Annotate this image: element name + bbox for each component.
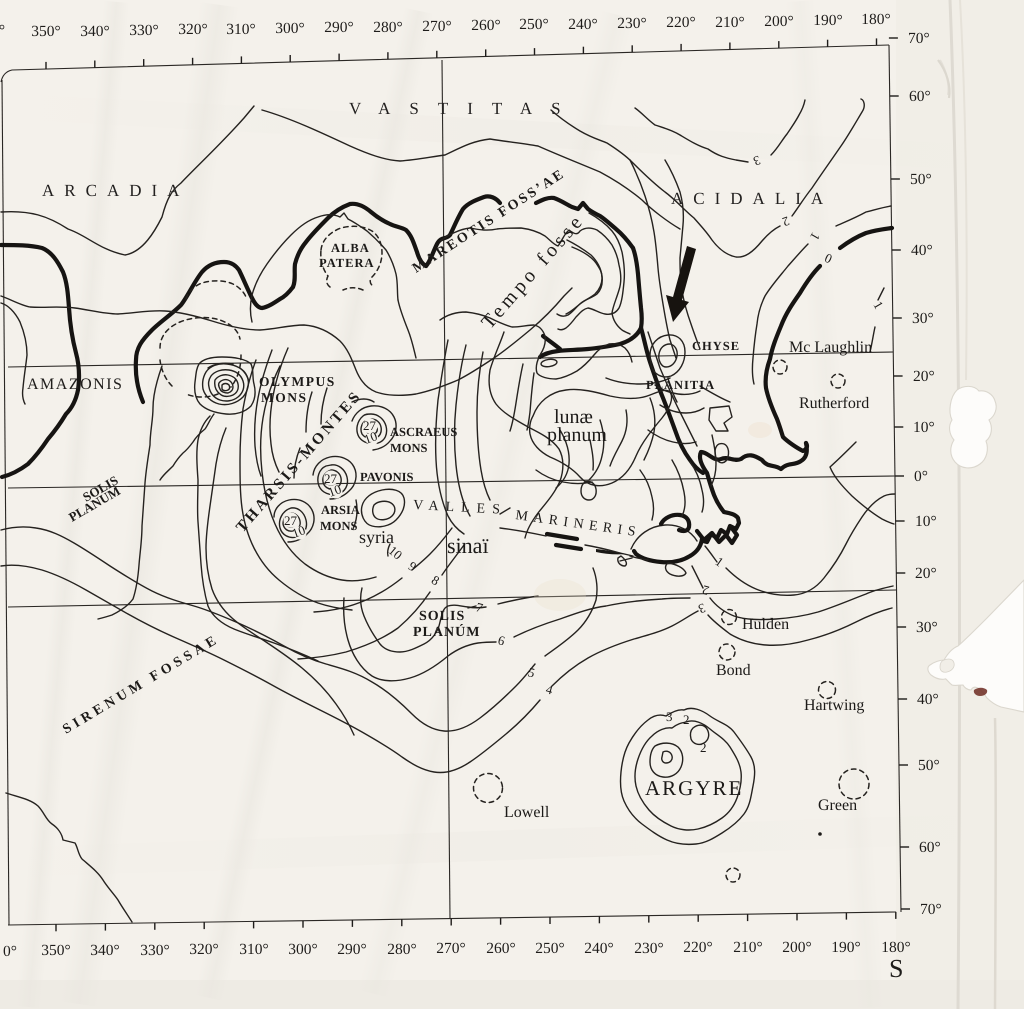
svg-text:290°: 290° xyxy=(324,19,353,36)
svg-text:330°: 330° xyxy=(129,22,158,39)
svg-text:syria: syria xyxy=(359,527,394,547)
svg-text:340°: 340° xyxy=(90,942,119,959)
svg-text:ACIDALIA: ACIDALIA xyxy=(671,189,833,208)
svg-text:340°: 340° xyxy=(80,23,109,40)
svg-text:250°: 250° xyxy=(535,940,564,957)
svg-text:50°: 50° xyxy=(910,171,932,188)
svg-text:°: ° xyxy=(0,22,5,39)
svg-text:280°: 280° xyxy=(373,19,402,36)
svg-text:330°: 330° xyxy=(140,942,169,959)
svg-text:Hulden: Hulden xyxy=(742,616,789,633)
svg-text:Green: Green xyxy=(818,797,857,814)
svg-text:280°: 280° xyxy=(387,941,416,958)
svg-text:70°: 70° xyxy=(920,901,942,918)
svg-text:180°: 180° xyxy=(861,11,890,28)
svg-text:S: S xyxy=(889,954,903,983)
svg-text:220°: 220° xyxy=(666,14,695,31)
svg-text:200°: 200° xyxy=(782,939,811,956)
svg-text:Rutherford: Rutherford xyxy=(799,395,869,412)
svg-text:planum: planum xyxy=(547,424,607,446)
svg-text:VASTITAS: VASTITAS xyxy=(349,99,580,118)
svg-text:210°: 210° xyxy=(715,14,744,31)
svg-text:300°: 300° xyxy=(288,941,317,958)
svg-text:40°: 40° xyxy=(911,242,933,259)
svg-text:260°: 260° xyxy=(471,17,500,34)
svg-text:ARCADIA: ARCADIA xyxy=(42,181,189,200)
svg-text:20°: 20° xyxy=(913,368,935,385)
svg-text:ARGYRE: ARGYRE xyxy=(645,776,743,800)
svg-text:30°: 30° xyxy=(916,619,938,636)
svg-text:MONS: MONS xyxy=(320,519,358,533)
svg-text:260°: 260° xyxy=(486,940,515,957)
svg-text:270°: 270° xyxy=(422,18,451,35)
svg-text:ARSIA: ARSIA xyxy=(321,503,360,517)
svg-text:0°: 0° xyxy=(3,943,17,960)
svg-text:240°: 240° xyxy=(568,16,597,33)
svg-text:310°: 310° xyxy=(226,21,255,38)
svg-text:AMAZONIS: AMAZONIS xyxy=(27,376,123,393)
svg-text:230°: 230° xyxy=(617,15,646,32)
svg-text:210°: 210° xyxy=(733,939,762,956)
svg-text:270°: 270° xyxy=(436,940,465,957)
svg-text:SOLIS: SOLIS xyxy=(419,609,465,624)
svg-text:PATERA: PATERA xyxy=(319,256,375,270)
svg-text:Hartwing: Hartwing xyxy=(804,697,864,714)
svg-text:MONS: MONS xyxy=(261,390,308,405)
svg-text:ALBA: ALBA xyxy=(331,241,370,255)
svg-text:320°: 320° xyxy=(189,941,218,958)
svg-text:10°: 10° xyxy=(915,513,937,530)
svg-text:ASCRAEUS: ASCRAEUS xyxy=(390,425,457,439)
svg-text:2: 2 xyxy=(683,712,690,727)
svg-text:190°: 190° xyxy=(813,12,842,29)
svg-text:3: 3 xyxy=(666,709,673,724)
svg-text:PLANÚM: PLANÚM xyxy=(413,623,480,640)
svg-text:MONS: MONS xyxy=(390,441,428,455)
svg-text:200°: 200° xyxy=(764,13,793,30)
svg-text:320°: 320° xyxy=(178,21,207,38)
svg-text:310°: 310° xyxy=(239,941,268,958)
svg-text:Mc Laughlin: Mc Laughlin xyxy=(789,339,872,356)
svg-text:230°: 230° xyxy=(634,940,663,957)
svg-text:PAVONIS: PAVONIS xyxy=(360,470,414,484)
svg-text:220°: 220° xyxy=(683,939,712,956)
svg-text:190°: 190° xyxy=(831,939,860,956)
svg-text:30°: 30° xyxy=(912,310,934,327)
svg-text:40°: 40° xyxy=(917,691,939,708)
svg-text:240°: 240° xyxy=(584,940,613,957)
svg-text:sinaï: sinaï xyxy=(447,533,489,558)
svg-text:70°: 70° xyxy=(908,30,930,47)
svg-text:PLANITIA: PLANITIA xyxy=(646,378,715,392)
svg-text:350°: 350° xyxy=(31,23,60,40)
svg-text:60°: 60° xyxy=(919,839,941,856)
svg-text:60°: 60° xyxy=(909,88,931,105)
svg-text:350°: 350° xyxy=(41,942,70,959)
svg-text:290°: 290° xyxy=(337,941,366,958)
svg-text:CHYSE: CHYSE xyxy=(692,339,740,353)
svg-text:2: 2 xyxy=(700,740,707,755)
svg-text:Bond: Bond xyxy=(716,662,751,679)
svg-text:10°: 10° xyxy=(913,419,935,436)
svg-text:20°: 20° xyxy=(915,565,937,582)
svg-text:250°: 250° xyxy=(519,16,548,33)
svg-text:50°: 50° xyxy=(918,757,940,774)
svg-text:0°: 0° xyxy=(914,468,928,485)
svg-text:OLYMPUS: OLYMPUS xyxy=(259,374,336,389)
svg-text:Lowell: Lowell xyxy=(504,804,550,821)
svg-text:300°: 300° xyxy=(275,20,304,37)
